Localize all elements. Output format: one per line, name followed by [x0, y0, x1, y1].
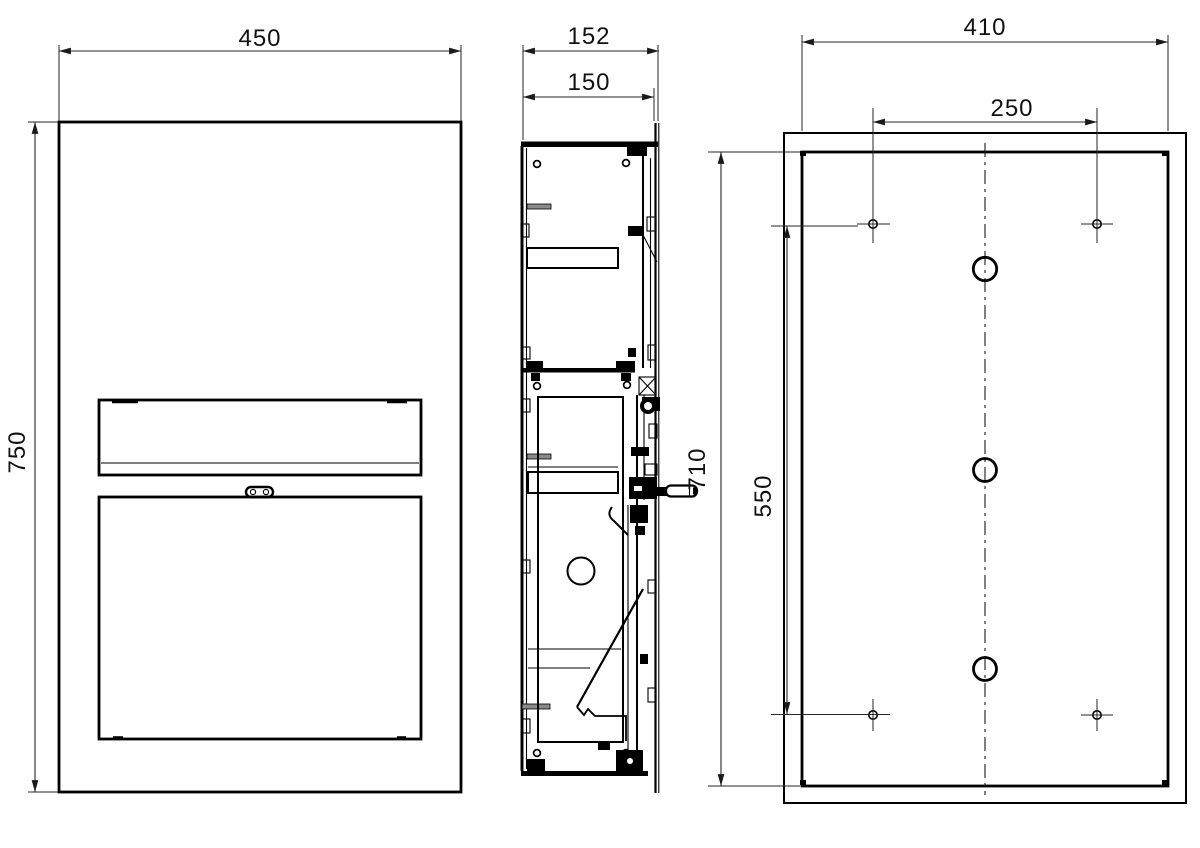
divider-bracket-left	[527, 361, 543, 368]
dim-side-recess-depth-value: 150	[567, 69, 610, 96]
side-top-plate	[521, 142, 658, 148]
rear-corner-mark-br	[1162, 780, 1168, 785]
side-divider-plate	[523, 368, 635, 373]
dim-rear-box-width: 410	[802, 14, 1168, 131]
bin-hole	[568, 558, 595, 585]
lock-body	[629, 477, 657, 499]
wall-tab-lower	[522, 704, 550, 709]
front-outer-panel	[59, 122, 461, 792]
divider-bracket-left-foot	[531, 373, 540, 381]
technical-drawing: 450 750 152 150 710	[0, 0, 1200, 848]
towel-stack	[527, 248, 618, 268]
drawing-canvas: 450 750 152 150 710	[0, 0, 1200, 848]
dim-rear-hole-horizontal-spacing: 250	[873, 95, 1097, 243]
rear-corner-mark-tr	[1162, 151, 1168, 156]
front-lock	[246, 487, 273, 497]
dim-front-height: 750	[4, 122, 58, 792]
waste-bin-liner	[538, 397, 623, 742]
dim-rear-box-height-value: 710	[684, 447, 711, 490]
mount-hole-bottom-right	[1081, 699, 1113, 731]
front-view	[59, 122, 461, 792]
dim-side-recess-depth: 150	[523, 69, 654, 121]
wall-tab-upper	[527, 204, 551, 209]
dim-rear-hole-vertical-spacing-value: 550	[750, 474, 777, 517]
divider-bracket-right-foot	[621, 373, 631, 381]
dim-front-width-value: 450	[238, 25, 281, 52]
dim-rear-box-width-value: 410	[963, 14, 1006, 41]
dim-rear-hole-horizontal-spacing-value: 250	[990, 95, 1033, 122]
front-lower-flap	[99, 497, 421, 739]
dim-rear-box-height: 710	[684, 152, 800, 786]
dim-side-overall-depth-value: 152	[567, 23, 610, 50]
front-upper-flap	[99, 400, 421, 475]
divider-bracket-right	[616, 361, 635, 368]
rear-corner-mark-tl	[800, 151, 806, 156]
rear-view	[784, 133, 1186, 803]
bin-rim	[528, 472, 618, 493]
dim-front-width: 450	[59, 25, 461, 121]
waste-flap-open	[577, 589, 643, 741]
dim-rear-hole-vertical-spacing: 550	[750, 226, 890, 715]
side-hardware	[527, 147, 697, 772]
dim-front-height-value: 750	[4, 430, 31, 473]
rear-corner-mark-bl	[800, 780, 806, 785]
side-view	[521, 123, 697, 793]
